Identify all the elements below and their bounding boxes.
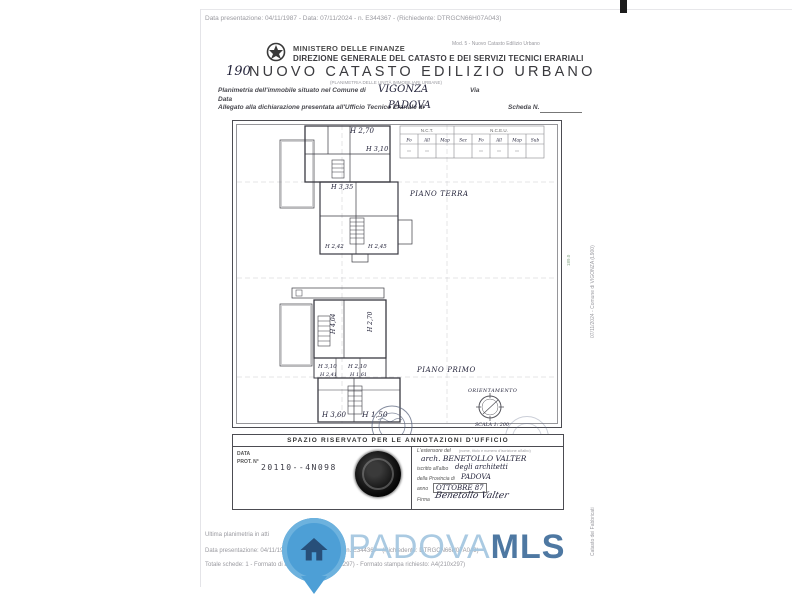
pp-height-3: H 3,10: [317, 364, 337, 370]
office-box-divider: [411, 447, 412, 509]
watermark-mls: MLS: [491, 528, 566, 566]
ministry-line: MINISTERO DELLE FINANZE: [293, 44, 405, 53]
ufficio-value-handwritten: PADOVA: [388, 100, 431, 111]
pt-height-1: H 2,70: [349, 127, 374, 135]
pt-height-4: H 2,42: [324, 244, 344, 250]
scheda-label: Scheda N.: [508, 104, 539, 111]
pp-height-5: H 2,41: [319, 372, 337, 378]
estensore-note: (nome, titolo e numero d'iscrizione all'…: [459, 449, 531, 453]
sheet-number-handwritten: 190: [226, 64, 251, 79]
orientation-label: ORIENTAMENTO: [468, 388, 517, 394]
ref-col-all: All: [423, 138, 430, 143]
scan-left-edge: [200, 9, 201, 587]
scale-label: SCALA 1: 200: [475, 422, 509, 428]
mod-ref: Mod. 5 - Nuovo Catasto Edilizio Urbano: [452, 41, 540, 47]
house-pin-icon: [282, 518, 348, 598]
albo-label: iscritto all'albo: [417, 466, 448, 472]
ref-col-map2: Map: [511, 138, 522, 143]
ink-stamp-icon: [355, 451, 401, 497]
ref-table-group-nceu: N.C.E.U.: [490, 128, 508, 133]
ref-col-all2: All: [495, 138, 502, 143]
watermark-brand: PADOVAMLS: [348, 528, 565, 567]
office-data-label: DATA: [237, 451, 250, 457]
piano-primo-label: PIANO PRIMO: [416, 366, 476, 374]
scan-corner-mark: [620, 0, 627, 13]
via-label: Via: [470, 87, 480, 94]
piano-terra-label: PIANO TERRA: [409, 190, 469, 198]
pp-height-6: H 1,61: [349, 372, 367, 378]
document-title: NUOVO CATASTO EDILIZIO URBANO: [249, 64, 596, 80]
ref-col-map: Map: [439, 138, 450, 143]
ref-col-sez: Sez: [459, 138, 467, 143]
pp-height-2: H 2,70: [367, 311, 374, 333]
anno-label: anno: [417, 486, 428, 492]
pp-height-1: H 4,04: [330, 313, 337, 335]
pt-height-3: H 3,35: [330, 183, 353, 191]
protocol-stamp-number: 20110--4N098: [261, 463, 337, 472]
pp-height-7: H 3,60: [321, 411, 346, 419]
albo-value-handwritten: degli architetti: [455, 463, 508, 471]
office-annotation-box: SPAZIO RISERVATO PER LE ANNOTAZIONI D'UF…: [232, 434, 564, 510]
ref-col-fo2: Fo: [477, 138, 484, 143]
data-label: Data: [218, 96, 232, 103]
side-margin-mark: 189.0: [566, 255, 571, 266]
professional-name-handwritten: arch. BENETOLLO VALTER: [421, 454, 526, 463]
watermark-padova: PADOVA: [348, 528, 491, 566]
scan-top-edge: [200, 9, 792, 10]
comune-value-handwritten: VIGONZA: [378, 84, 428, 95]
top-meta-line: Data presentazione: 04/11/1987 - Data: 0…: [205, 15, 501, 22]
pt-height-5: H 2,45: [367, 244, 387, 250]
firma-label: Firma: [417, 497, 430, 503]
scanned-cadastral-document: { "scan": { "top_meta": "Data presentazi…: [0, 0, 800, 600]
signature-handwritten: Benetollo Valter: [434, 491, 509, 501]
ref-table-group-nct: N.C.T.: [421, 128, 434, 133]
floor-plan-drawing: N.C.T. N.C.E.U. Fo All Map Sez Fo All Ma…: [232, 120, 562, 428]
pp-height-8: H 1,50: [361, 410, 388, 419]
ministry-emblem-icon: [266, 41, 286, 63]
office-box-title: SPAZIO RISERVATO PER LE ANNOTAZIONI D'UF…: [233, 435, 563, 447]
floor-plan-sheet: N.C.T. N.C.E.U. Fo All Map Sez Fo All Ma…: [232, 120, 562, 428]
direction-line: DIREZIONE GENERALE DEL CATASTO E DEI SER…: [293, 54, 584, 63]
pp-height-4: H 2,10: [347, 364, 367, 370]
side-text-upper: 07/11/2024 - Comune di VIGONZA (L900): [590, 245, 596, 338]
provincia-value-handwritten: PADOVA: [461, 473, 491, 481]
scheda-blank-line: [540, 111, 582, 113]
side-text-lower: Catasto dei Fabbricati: [590, 507, 596, 556]
comune-label: Planimetria dell'immobile situato nel Co…: [218, 87, 366, 94]
office-prot-label: PROT. N°: [237, 459, 259, 465]
provincia-label: della Provincia di: [417, 476, 455, 482]
ref-col-sub: Sub: [531, 138, 540, 143]
ref-col-fo: Fo: [405, 138, 412, 143]
pt-height-2: H 3,10: [365, 145, 388, 153]
footer-line-1: Ultima planimetria in atti: [205, 532, 269, 538]
